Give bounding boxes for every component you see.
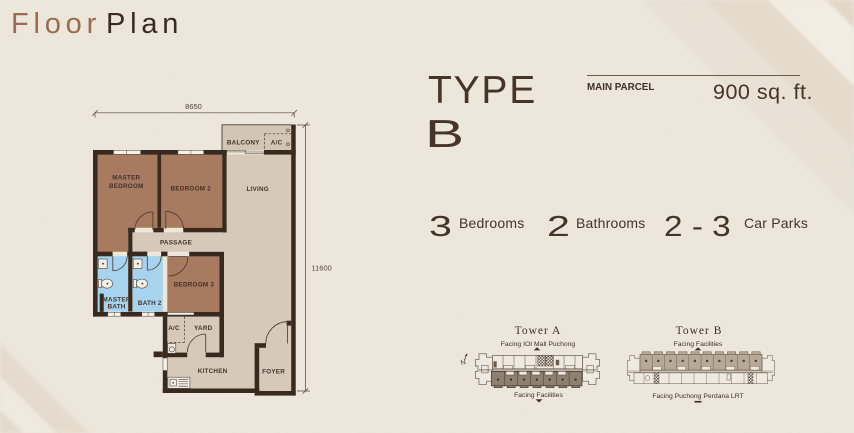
svg-text:BEDROOM 2: BEDROOM 2 [171,185,212,192]
svg-text:A/C: A/C [271,139,283,146]
svg-text:KITCHEN: KITCHEN [198,368,228,375]
svg-text:Facing Facilities: Facing Facilities [674,341,723,348]
svg-text:Facing IOI Mall Puchong: Facing IOI Mall Puchong [501,341,576,348]
svg-text:LIVING: LIVING [246,186,269,193]
svg-text:11600: 11600 [312,264,332,273]
svg-text:Facing Facilities: Facing Facilities [514,392,563,399]
svg-text:8650: 8650 [185,102,202,111]
svg-text:Facing Puchong Perdana LRT: Facing Puchong Perdana LRT [652,393,743,400]
svg-text:BALCONY: BALCONY [227,139,260,146]
svg-text:FOYER: FOYER [262,369,285,376]
svg-text:A/C: A/C [168,325,180,332]
svg-text:BATH 2: BATH 2 [138,300,162,307]
svg-text:Tower A: Tower A [515,325,562,337]
svg-text:Tower B: Tower B [676,325,723,337]
svg-text:BEDROOM: BEDROOM [109,183,144,190]
svg-text:MASTER: MASTER [112,175,140,182]
svg-text:N: N [460,359,467,367]
svg-text:YARD: YARD [194,325,212,332]
svg-text:BEDROOM 3: BEDROOM 3 [174,282,215,289]
svg-text:BATH: BATH [108,303,126,310]
svg-text:PASSAGE: PASSAGE [160,240,192,247]
